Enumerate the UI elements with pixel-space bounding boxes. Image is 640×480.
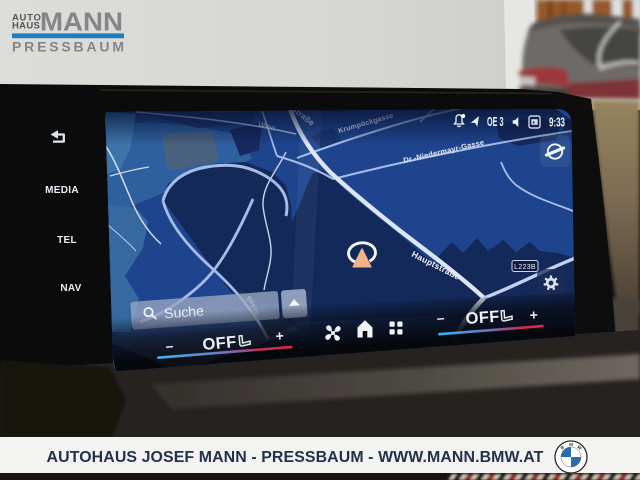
svg-text:AUTOHAUS JOSEF MANN - PRESSBAU: AUTOHAUS JOSEF MANN - PRESSBAUM - WWW.MA… xyxy=(47,449,544,466)
svg-text:MEDIA: MEDIA xyxy=(45,185,79,196)
svg-text:9:33: 9:33 xyxy=(549,115,565,130)
svg-text:NAV: NAV xyxy=(60,283,81,294)
svg-text:+: + xyxy=(529,306,538,323)
svg-text:HAUS: HAUS xyxy=(12,21,40,32)
svg-text:OFF: OFF xyxy=(465,308,500,328)
svg-text:MANN: MANN xyxy=(40,8,123,36)
svg-text:TEL: TEL xyxy=(57,235,77,246)
svg-text:M: M xyxy=(569,442,573,447)
svg-text:OE 3: OE 3 xyxy=(487,115,504,129)
svg-text:–: – xyxy=(436,309,445,326)
svg-text:L223B: L223B xyxy=(514,264,536,271)
svg-text:PRESSBAUM: PRESSBAUM xyxy=(12,39,124,55)
